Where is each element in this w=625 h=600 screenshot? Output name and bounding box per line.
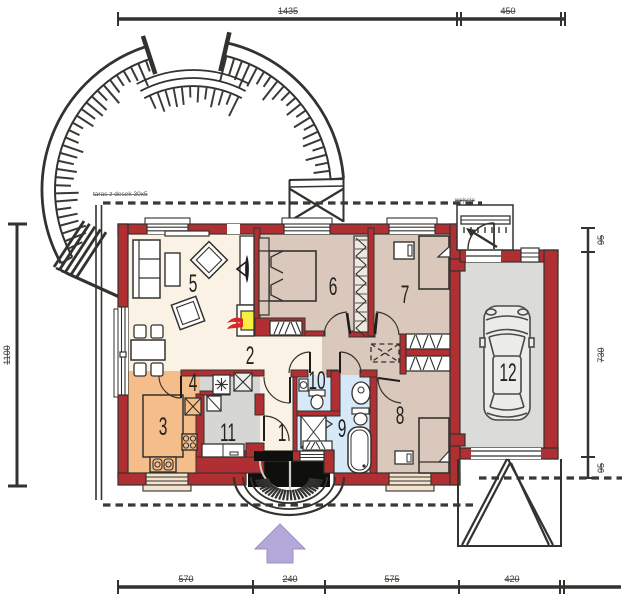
svg-text:taras z desek 30x5: taras z desek 30x5 bbox=[93, 191, 148, 198]
svg-text:570: 570 bbox=[178, 574, 193, 584]
svg-text:1435: 1435 bbox=[278, 6, 298, 16]
svg-text:240: 240 bbox=[282, 574, 297, 584]
svg-text:12: 12 bbox=[499, 359, 516, 387]
svg-text:730: 730 bbox=[596, 347, 606, 362]
svg-text:4: 4 bbox=[189, 369, 198, 397]
svg-text:420: 420 bbox=[504, 574, 519, 584]
svg-text:450: 450 bbox=[500, 6, 515, 16]
svg-text:95: 95 bbox=[596, 235, 606, 245]
svg-text:1100: 1100 bbox=[2, 345, 12, 364]
svg-text:10: 10 bbox=[308, 367, 325, 395]
svg-text:7: 7 bbox=[401, 281, 410, 309]
svg-text:9: 9 bbox=[338, 415, 347, 443]
svg-text:wejscie: wejscie bbox=[454, 198, 475, 204]
svg-text:5: 5 bbox=[189, 270, 198, 298]
svg-text:2: 2 bbox=[246, 342, 255, 370]
svg-text:1: 1 bbox=[278, 419, 287, 447]
svg-text:8: 8 bbox=[396, 402, 405, 430]
svg-text:6: 6 bbox=[329, 273, 338, 301]
svg-text:3: 3 bbox=[159, 413, 168, 441]
svg-text:11: 11 bbox=[220, 419, 236, 447]
svg-text:575: 575 bbox=[384, 574, 399, 584]
svg-text:95: 95 bbox=[596, 463, 606, 473]
